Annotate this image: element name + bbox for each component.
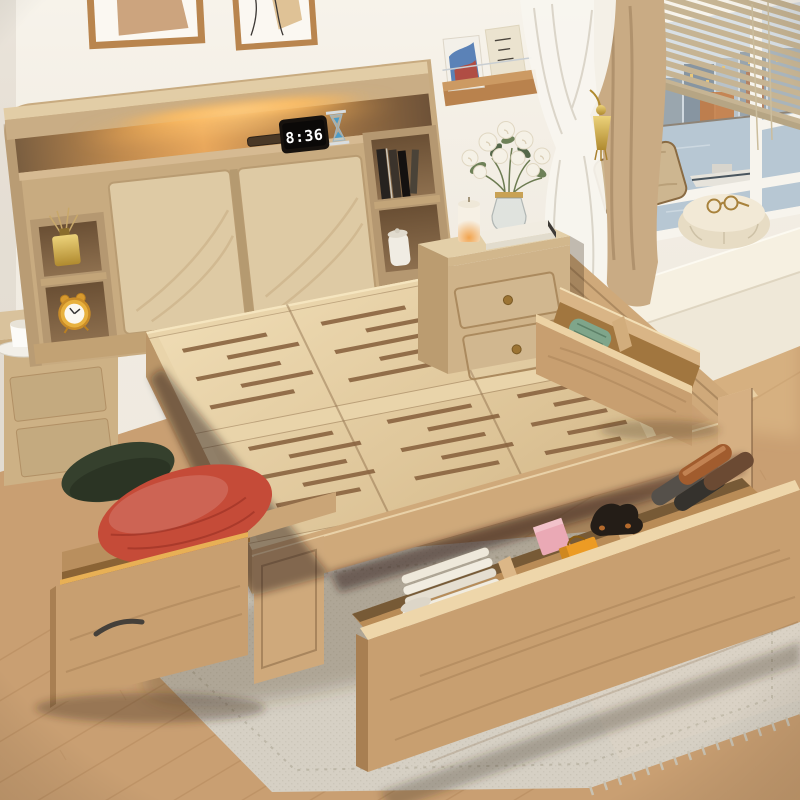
bedroom-photo: 8:36 <box>0 0 800 800</box>
scene: 8:36 <box>0 0 800 800</box>
vignette <box>0 0 800 800</box>
